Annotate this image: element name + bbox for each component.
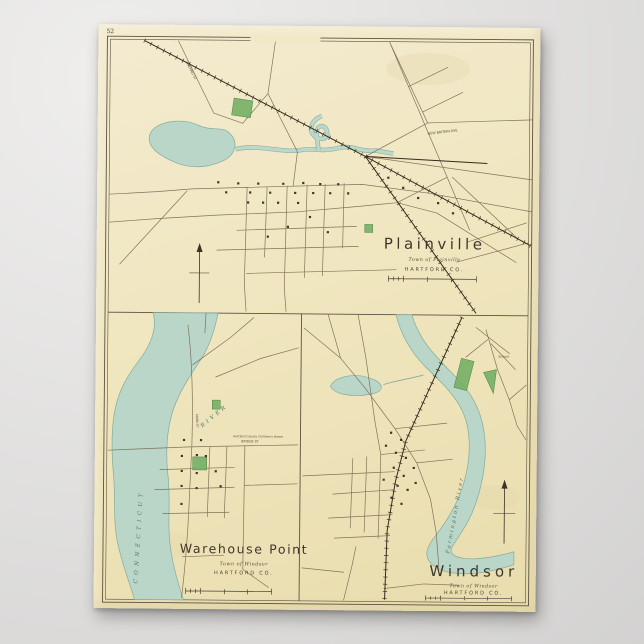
plainville-panel: WHITING ST NEW BRITAIN AVE Plainville To… [108, 39, 533, 314]
childrens-home-label: Hartford County Children's Home [233, 434, 283, 438]
street-label-main: MAIN ST [195, 414, 200, 428]
small-green [365, 224, 373, 232]
windsor-county: HARTFORD CO. [444, 590, 504, 597]
connecticut-river [111, 312, 218, 600]
page-number: 52 [106, 28, 114, 35]
warehouse-point-county: HARTFORD CO. [214, 570, 274, 577]
border-gap [250, 34, 320, 43]
school-label: School [498, 355, 509, 359]
railroad-main-east [365, 156, 532, 245]
wp-park-square [193, 457, 207, 470]
park-square [232, 98, 253, 118]
plainville-title: Plainville [384, 235, 486, 254]
warehouse-point-panel: CONNECTICUT RIVER MAIN ST BRIDGE ST Hart… [107, 312, 311, 601]
railroad-spur-east [365, 156, 487, 163]
pond-outlet-stream [383, 375, 423, 385]
wp-building-cluster [180, 439, 222, 506]
pond [149, 121, 235, 167]
windsor-subtitle: Town of Windsor [449, 583, 498, 589]
windsor-building-cluster [382, 432, 417, 505]
warehouse-point-scale-bar [186, 588, 272, 595]
windsor-panel: Farmington River School Windsor Town of … [302, 314, 527, 602]
plainville-scale-bar [388, 276, 476, 283]
warehouse-point-title: Warehouse Point [180, 541, 309, 557]
street-label-new-britain: NEW BRITAIN AVE [427, 128, 457, 135]
cemetery-triangle [483, 369, 496, 393]
windsor-title: Windsor [429, 562, 518, 581]
atlas-map: 52 [93, 24, 540, 612]
north-arrow-icon [189, 243, 210, 303]
plainville-county: HARTFORD CO. [405, 267, 465, 274]
street-label-bridge: BRIDGE ST [241, 439, 258, 443]
warehouse-point-subtitle: Town of Windsor [220, 561, 269, 567]
map-sheet: 52 [93, 24, 540, 612]
windsor-pond [330, 375, 381, 395]
cemetery-green [454, 358, 474, 390]
street-label-whiting: WHITING ST [185, 60, 198, 81]
plainville-subtitle: Town of Plainville [408, 257, 460, 263]
panel-divider-vertical [299, 314, 302, 601]
road-network [108, 39, 533, 314]
